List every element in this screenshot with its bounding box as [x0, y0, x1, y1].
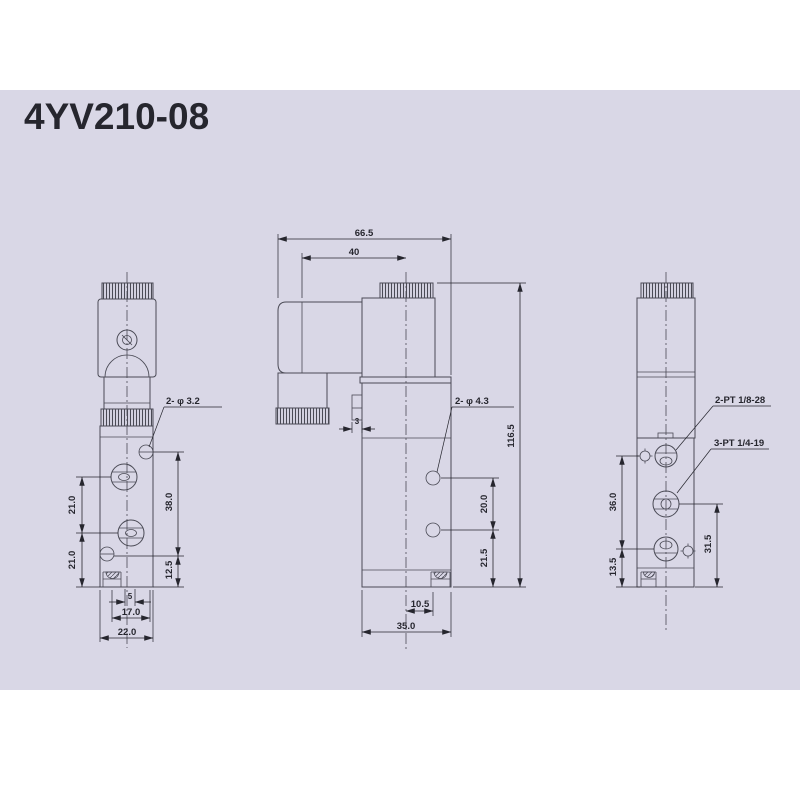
coil-body-side: [360, 298, 451, 383]
dimension-tab-3: 3: [339, 417, 375, 433]
callout-holes-front-label: 2- φ 3.2: [166, 396, 200, 407]
callout-mounting-holes-front: 2- φ 3.2: [149, 396, 222, 447]
dim-width-17: 17.0: [122, 607, 141, 618]
valve-body-front: [100, 426, 153, 587]
callout-port-mid: 3-PT 1/4-19: [677, 438, 769, 493]
rear-view: 36.0 13.5 31.5 2-PT 1/8-28 3-PT 1/4-19: [608, 272, 771, 632]
dim-width-35: 35.0: [397, 621, 416, 632]
dim-offset-105: 10.5: [411, 599, 430, 610]
dim-pitch-lower: 21.0: [67, 551, 78, 570]
coil-cap-front: [102, 283, 153, 299]
coil-cap-rear: [641, 283, 693, 298]
dimension-pitch-left: 21.0 21.0: [67, 477, 118, 587]
page: { "title": "4YV210-08", "colors": { "pan…: [0, 0, 800, 800]
din-connector: [276, 302, 362, 424]
dim-span-315: 31.5: [703, 534, 714, 553]
dimension-port-pitch-rear: 36.0 13.5: [608, 456, 654, 587]
callout-port-mid-label: 3-PT 1/4-19: [714, 438, 764, 449]
dim-overall-66: 66.5: [355, 228, 374, 239]
dimension-overall-height: 116.5 20.0 21.5: [437, 283, 526, 587]
pilot-hole-left: [638, 449, 653, 464]
port-b-front: [118, 520, 144, 546]
dim-span-36: 36.0: [608, 493, 619, 512]
mounting-hole-top: [426, 471, 440, 485]
valve-body-side: [352, 383, 451, 587]
dim-pitch-upper: 21.0: [67, 496, 78, 515]
dim-pitch-20: 20.0: [479, 495, 490, 514]
port-a-front: [111, 464, 137, 490]
callout-mounting-holes-side: 2- φ 4.3: [437, 396, 514, 472]
dim-span-125: 12.5: [164, 560, 175, 579]
exhaust-tab-side: [431, 572, 450, 587]
dim-tab-3-label: 3: [355, 417, 360, 426]
mounting-hole-bottom: [426, 523, 440, 537]
side-view: 66.5 40 116.5 20.0 21.5 3: [276, 228, 526, 650]
dimension-span-rear: 31.5: [679, 504, 723, 587]
dim-span-38: 38.0: [164, 493, 175, 512]
technical-drawing: 21.0 21.0 38.0 12.5 5 17.0 22: [0, 0, 800, 800]
callout-holes-side-label: 2- φ 4.3: [455, 396, 489, 407]
pilot-hole-right: [681, 544, 696, 559]
coil-cap-side: [380, 283, 433, 298]
dim-span-215: 21.5: [479, 548, 490, 567]
dim-overall-116: 116.5: [506, 424, 517, 448]
dimension-widths-front: 5 17.0 22.0: [100, 589, 153, 642]
dim-coil-40: 40: [349, 247, 360, 258]
exhaust-tab-rear: [641, 572, 656, 587]
front-view: 21.0 21.0 38.0 12.5 5 17.0 22: [67, 272, 222, 648]
dimension-widths-side: 10.5 35.0: [362, 590, 451, 637]
exhaust-tab-front: [103, 572, 121, 587]
dim-notch-5: 5: [128, 592, 133, 601]
dim-span-135: 13.5: [608, 557, 619, 576]
callout-port-top-label: 2-PT 1/8-28: [715, 395, 765, 406]
dim-width-22: 22.0: [118, 627, 137, 638]
